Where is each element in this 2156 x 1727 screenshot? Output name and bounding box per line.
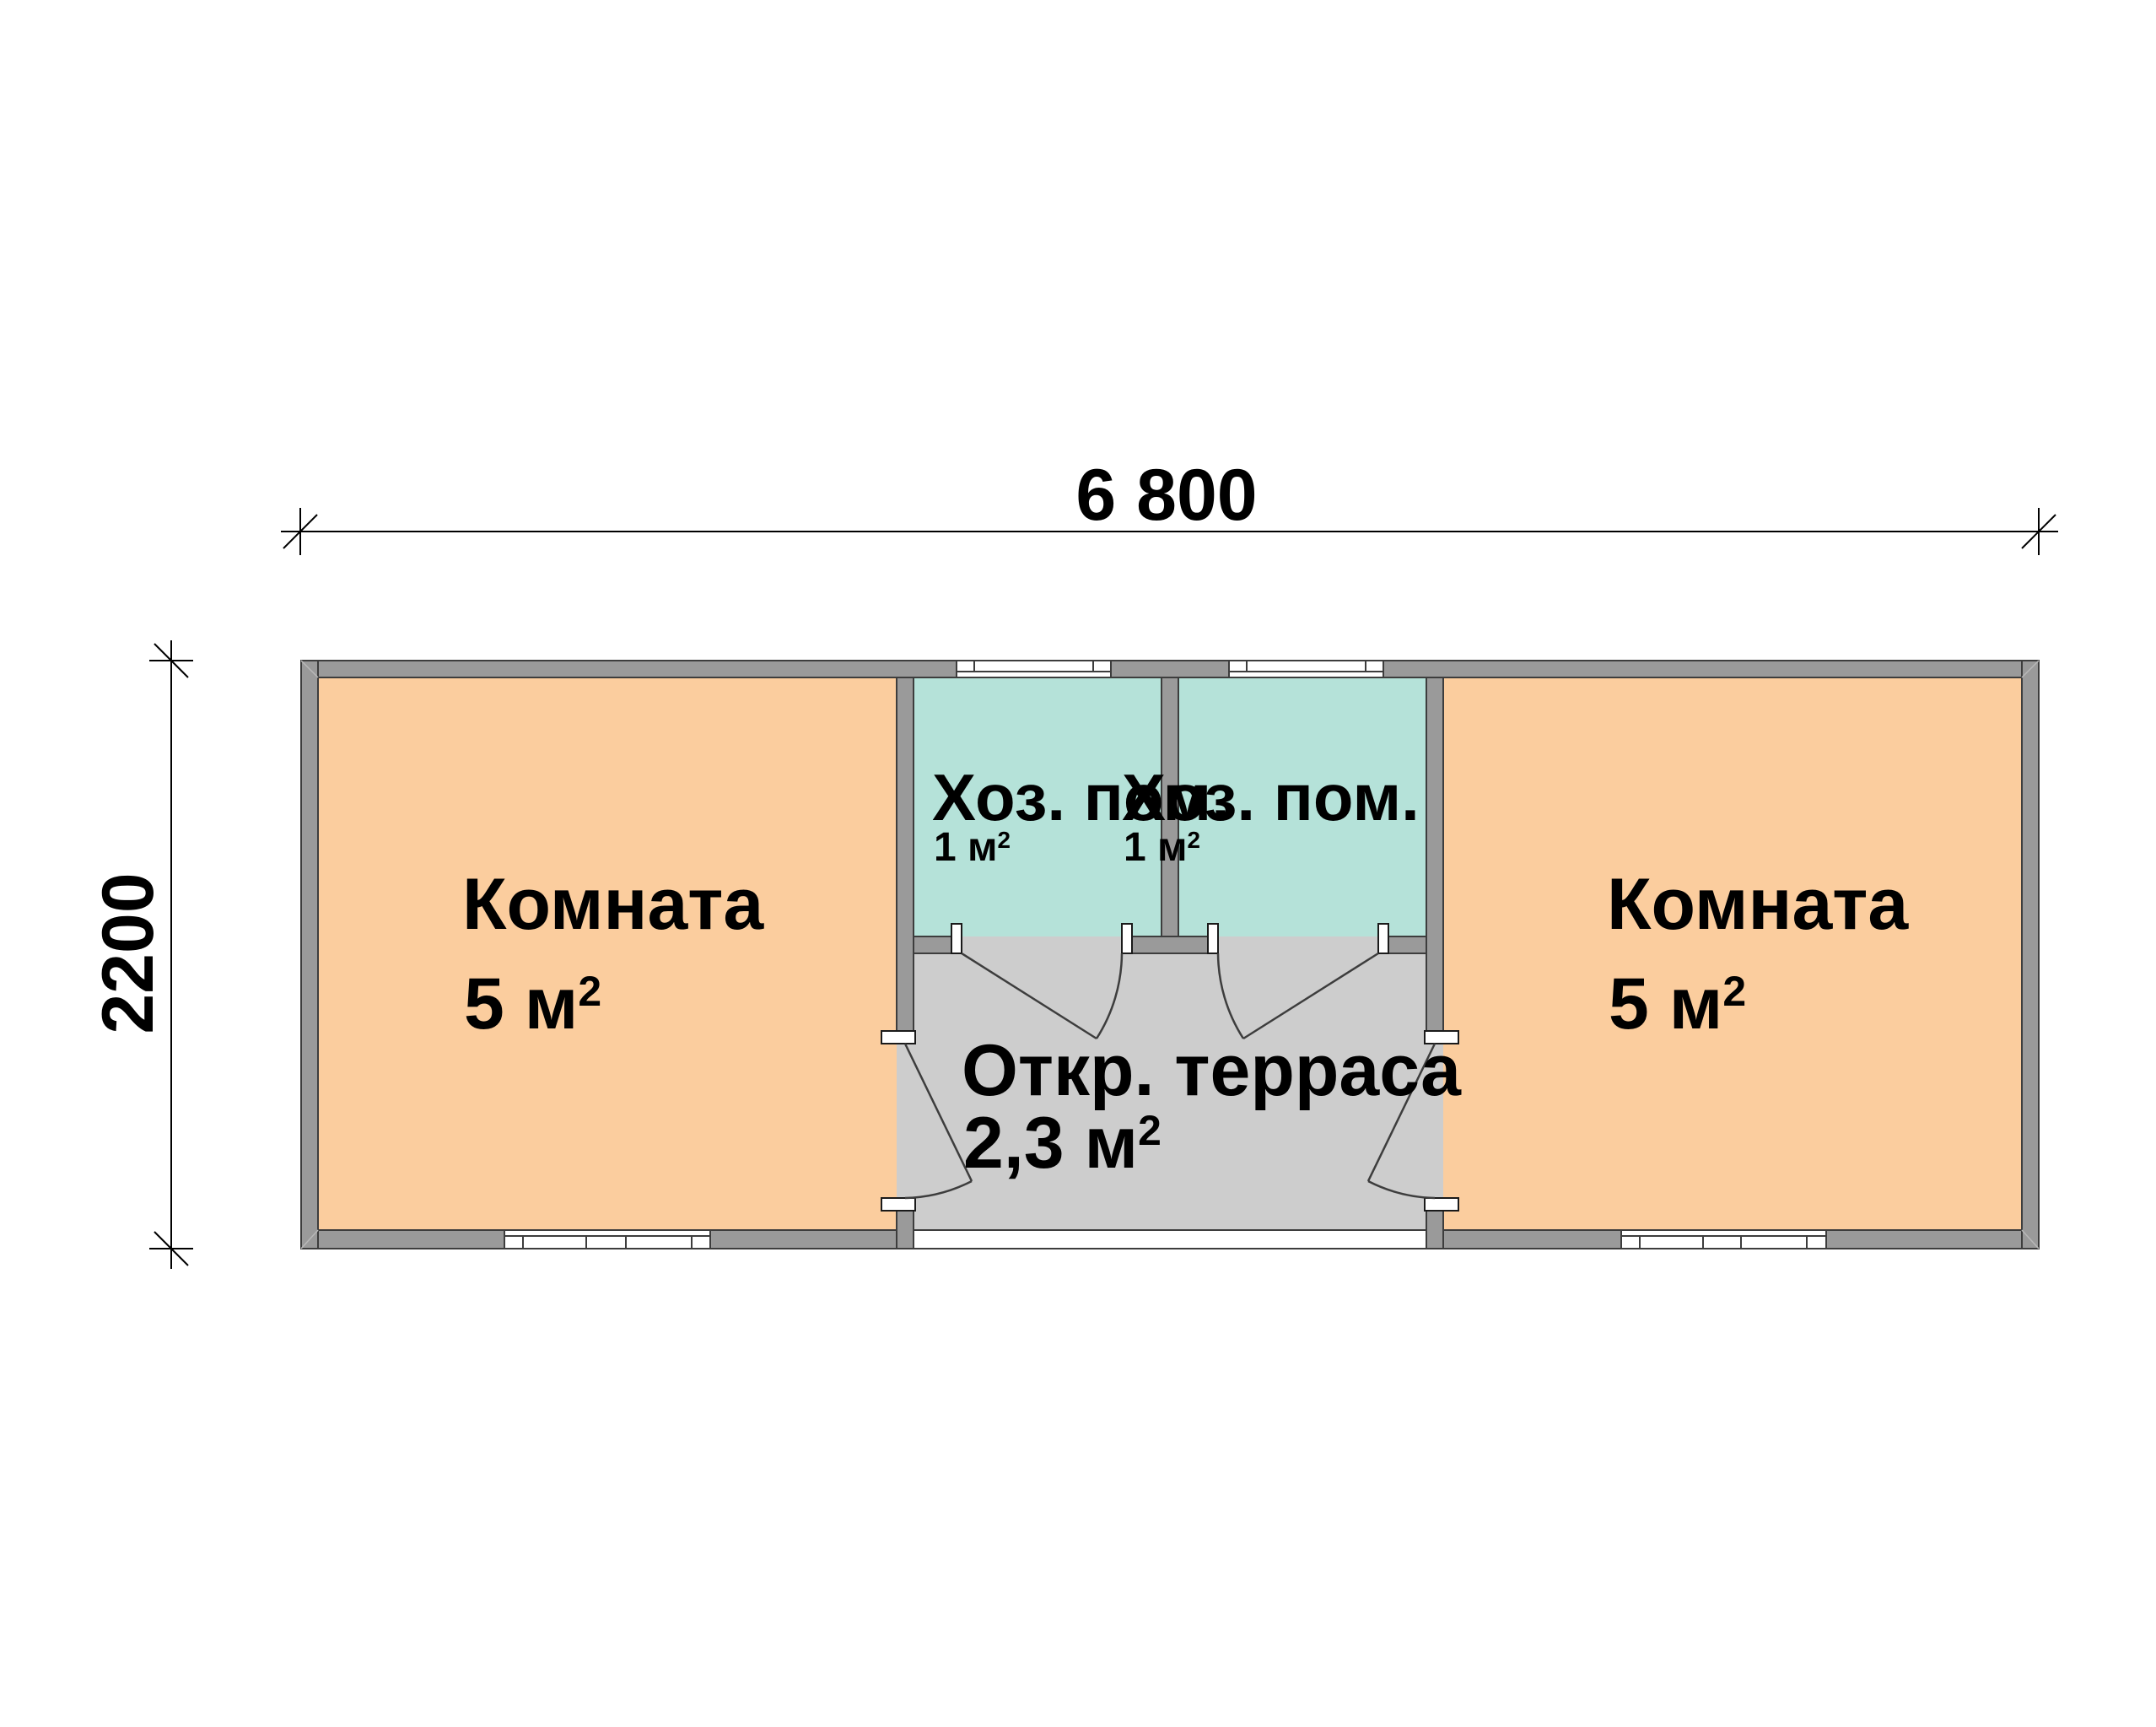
terrace-area-value: 2,3 м bbox=[963, 1103, 1138, 1184]
room-right-area-value: 5 м bbox=[1609, 963, 1722, 1044]
wall-utility-bottom-left bbox=[914, 936, 951, 953]
utility-left-area: 1 м2 bbox=[934, 828, 1011, 868]
room-left-floor bbox=[318, 677, 897, 1230]
utility-right-name: Хоз. пом. bbox=[1122, 764, 1420, 830]
window-utility-right bbox=[1229, 661, 1383, 677]
room-right-floor bbox=[1443, 677, 2022, 1230]
window-utility-left bbox=[957, 661, 1111, 677]
utility-right-area: 1 м2 bbox=[1124, 828, 1200, 868]
terrace-name: Откр. терраса bbox=[962, 1034, 1461, 1107]
wall-right bbox=[2022, 661, 2039, 1249]
wall-room-left-lower bbox=[897, 1211, 914, 1249]
dimension-width-label: 6 800 bbox=[956, 459, 1377, 532]
window-room-left bbox=[504, 1230, 710, 1249]
window-room-right bbox=[1621, 1230, 1826, 1249]
wall-room-right-lower bbox=[1426, 1211, 1443, 1249]
wall-utility-bottom-center bbox=[1132, 936, 1208, 953]
terrace-open-edge bbox=[914, 1230, 1426, 1249]
room-left-name: Комната bbox=[462, 868, 763, 941]
room-left-area: 5 м2 bbox=[464, 968, 601, 1040]
wall-room-right-upper bbox=[1426, 677, 1443, 1031]
wall-left bbox=[301, 661, 318, 1249]
room-right-area: 5 м2 bbox=[1609, 968, 1746, 1040]
wall-top bbox=[301, 661, 2039, 677]
dimension-height-label: 2200 bbox=[90, 742, 166, 1164]
floor-plan: 6 800 2200 Комната 5 м2 Комната 5 м2 Хоз… bbox=[0, 0, 2156, 1727]
utility-left-area-value: 1 м bbox=[934, 825, 998, 870]
room-right-area-sup: 2 bbox=[1722, 968, 1746, 1015]
wall-room-left-upper bbox=[897, 677, 914, 1031]
terrace-area: 2,3 м2 bbox=[963, 1107, 1162, 1179]
utility-right-area-sup: 2 bbox=[1188, 827, 1200, 853]
wall-utility-bottom-right bbox=[1388, 936, 1426, 953]
room-right-name: Комната bbox=[1607, 868, 1908, 941]
utility-left-area-sup: 2 bbox=[998, 827, 1011, 853]
room-left-area-sup: 2 bbox=[578, 968, 601, 1015]
terrace-area-sup: 2 bbox=[1138, 1107, 1162, 1154]
room-left-area-value: 5 м bbox=[464, 963, 578, 1044]
utility-right-area-value: 1 м bbox=[1124, 825, 1188, 870]
